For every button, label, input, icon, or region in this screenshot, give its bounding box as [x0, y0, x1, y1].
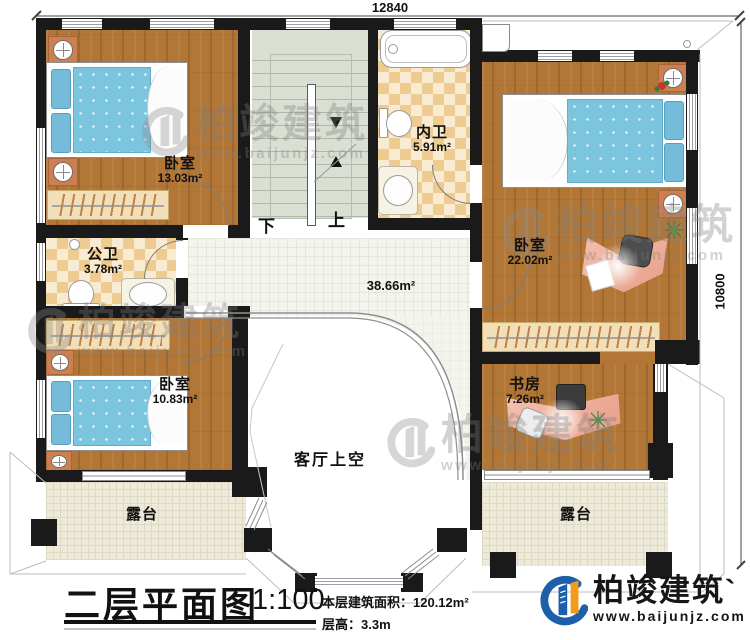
room-name: 书房	[483, 376, 567, 393]
room-label-bedroom3: 卧室 10.83m²	[133, 376, 217, 407]
dimension-top: 12840	[363, 0, 417, 15]
terrace-left-label: 露台	[102, 506, 182, 523]
hall-area-label: 38.66m²	[351, 279, 431, 294]
title-underline	[64, 620, 316, 624]
room-name: 露台	[536, 506, 616, 523]
room-area: 5.91m²	[390, 141, 474, 155]
title-underline-thin	[64, 628, 316, 630]
room-name: 客厅上空	[270, 452, 390, 470]
room-label-bedroom1: 卧室 13.03m²	[138, 155, 222, 186]
flower-icon	[655, 81, 670, 92]
drawing-scale: 1:100	[252, 584, 325, 617]
room-name: 内卫	[390, 124, 474, 141]
room-area: 13.03m²	[138, 172, 222, 186]
plan-linework	[0, 0, 750, 640]
room-area: 3.78m²	[61, 263, 145, 277]
brand-logo-icon	[536, 574, 588, 632]
brand-site: www.baijunjz.com	[593, 608, 746, 624]
stair-up-label: 上	[328, 206, 345, 231]
room-name: 露台	[102, 506, 182, 523]
room-name: 卧室	[138, 155, 222, 172]
plant-icon	[665, 221, 683, 239]
room-label-bedroom2: 卧室 22.02m²	[488, 237, 572, 268]
room-label-study: 书房 7.26m²	[483, 376, 567, 407]
room-area: 38.66m²	[351, 279, 431, 294]
floor-height-line: 层高：3.3m	[322, 614, 469, 636]
dimension-right: 10800	[713, 264, 728, 320]
brand-logo: 柏竣建筑` www.baijunjz.com	[536, 574, 746, 632]
brand-mark: `	[725, 573, 737, 608]
room-label-ensuite-bath: 内卫 5.91m²	[390, 124, 474, 155]
drawing-info: 本层建筑面积：120.12m² 层高：3.3m	[322, 592, 469, 636]
room-name: 卧室	[133, 376, 217, 393]
room-label-public-bath: 公卫 3.78m²	[61, 246, 145, 277]
room-area: 10.83m²	[133, 393, 217, 407]
void-label: 客厅上空	[270, 452, 390, 470]
plant-icon	[589, 411, 607, 429]
brand-name: 柏竣建筑	[593, 573, 725, 608]
floor-area-line: 本层建筑面积：120.12m²	[322, 592, 469, 614]
room-area: 7.26m²	[483, 393, 567, 407]
room-area: 22.02m²	[488, 254, 572, 268]
room-name: 公卫	[61, 246, 145, 263]
room-name: 卧室	[488, 237, 572, 254]
stair-down-label: 下	[258, 212, 275, 237]
terrace-right-label: 露台	[536, 506, 616, 523]
floor-plan-page: 柏竣建筑 www.baijunjz.com 柏竣建筑 www.baijunjz.…	[0, 0, 750, 640]
